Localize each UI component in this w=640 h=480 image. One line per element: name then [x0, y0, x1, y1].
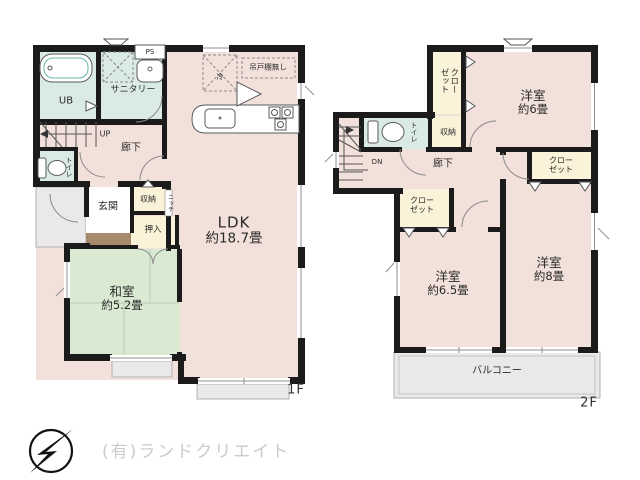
compass-icon: [30, 429, 73, 473]
room-label-toilet-1f: トイレ: [65, 157, 73, 178]
closet-tall-line2: ゼット: [438, 68, 448, 94]
floorplan-page: UB サニタリー PS UP 廊下 トイレ 玄関 収納 ニッチ 押入 和室 約5…: [0, 0, 640, 480]
closet-tall-line1: クロー: [448, 68, 458, 94]
room-label-hallway-1f: 廊下: [121, 142, 141, 154]
closet-left-line1: クロー: [410, 196, 434, 205]
room-label-genkan: 玄関: [98, 201, 118, 213]
room-label-closet-left: クロー ゼット: [410, 196, 434, 214]
floor2-caption: 2F: [580, 397, 598, 412]
entrance-porch: [36, 187, 86, 247]
room-label-bedroom6: 洋室 約6畳: [518, 89, 548, 117]
roof-vent-1f: [104, 39, 128, 45]
room-label-ub: UB: [59, 95, 73, 107]
room-label-closet-tall: クロー ゼット: [438, 68, 458, 94]
bathtub-icon: [40, 54, 92, 82]
kitchen-counter-icon: [192, 105, 299, 133]
roof-vent-2f: [504, 39, 532, 45]
bedroom6-size: 約6畳: [518, 104, 548, 117]
closet-left-line2: ゼット: [410, 205, 434, 214]
room-label-ldk: LDK 約18.7畳: [205, 215, 262, 248]
closet-right-line2: ゼット: [549, 165, 573, 174]
room-label-washitsu: 和室 約5.2畳: [101, 285, 142, 313]
fridge-label: 冷: [217, 73, 224, 81]
bedroom65-size: 約6.5畳: [427, 285, 468, 298]
room-label-bedroom8: 洋室 約8畳: [534, 256, 564, 284]
room-label-hallway-2f: 廊下: [433, 158, 453, 170]
bedroom6-name: 洋室: [518, 89, 548, 103]
bedroom8-size: 約8畳: [534, 271, 564, 284]
washitsu-size: 約5.2畳: [101, 300, 142, 313]
ldk-name: LDK: [205, 215, 262, 232]
bedroom65-name: 洋室: [427, 270, 468, 284]
room-label-oshiire: 押入: [144, 226, 161, 236]
floorplan-drawing: [0, 0, 640, 480]
floor2-plan: [325, 39, 609, 398]
room-label-bedroom65: 洋室 約6.5畳: [427, 270, 468, 298]
room-label-closet-right: クロー ゼット: [549, 156, 573, 174]
niche-label: ニッチ: [166, 194, 173, 212]
no-cupboard-label: 吊戸棚無し: [249, 64, 287, 73]
room-label-sanitary: サニタリー: [110, 85, 155, 95]
room-label-ps: PS: [146, 48, 155, 56]
toilet-icon-2f: [368, 121, 404, 143]
washbasin-icon: [137, 60, 163, 82]
floor1-plan: [33, 39, 314, 399]
bedroom8-name: 洋室: [534, 256, 564, 270]
stairs-up-label: UP: [100, 129, 111, 138]
room-label-storage-1f: 収納: [140, 194, 156, 203]
balcony-label: バルコニー: [472, 365, 522, 377]
floor2-room-fills: [336, 48, 600, 398]
company-name: (有)ランドクリエイト: [102, 437, 290, 462]
stairs-dn-label: DN: [372, 158, 383, 166]
washitsu-name: 和室: [101, 285, 142, 299]
ldk-size: 約18.7畳: [205, 232, 262, 248]
room-label-storage-2f: 収納: [440, 127, 456, 136]
closet-right-line1: クロー: [549, 156, 573, 165]
floor1-caption: 1F: [287, 384, 305, 399]
room-label-toilet-2f: トイレ: [410, 122, 418, 143]
